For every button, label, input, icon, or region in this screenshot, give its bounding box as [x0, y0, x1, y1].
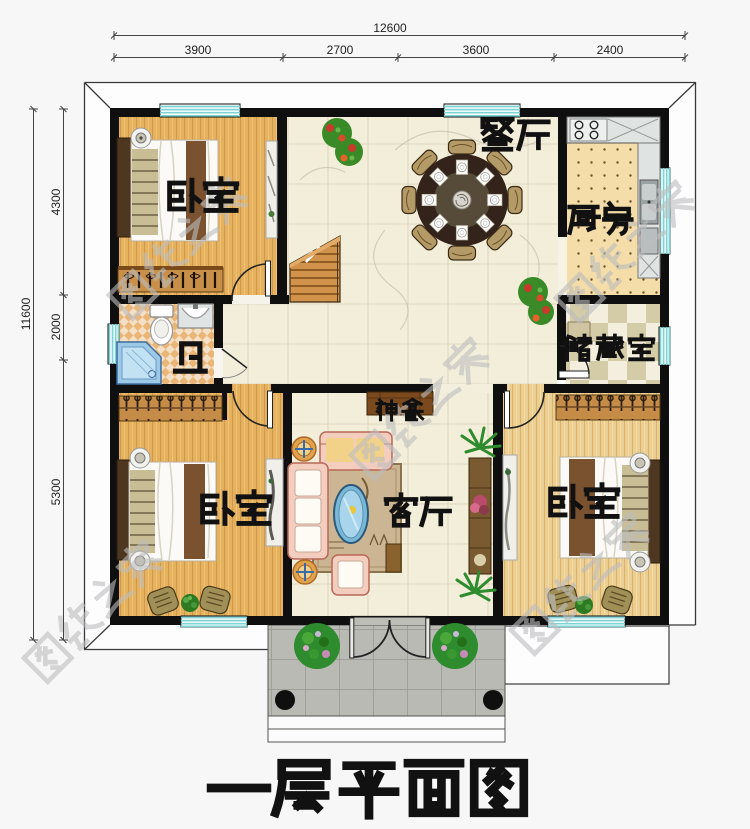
- svg-text:5300: 5300: [49, 478, 63, 505]
- svg-text:2000: 2000: [49, 313, 63, 340]
- svg-text:3900: 3900: [185, 43, 212, 57]
- svg-text:11600: 11600: [19, 297, 33, 330]
- svg-text:2700: 2700: [327, 43, 354, 57]
- svg-text:12600: 12600: [373, 21, 407, 35]
- svg-text:3600: 3600: [463, 43, 490, 57]
- svg-text:2400: 2400: [597, 43, 624, 57]
- svg-text:4300: 4300: [49, 188, 63, 215]
